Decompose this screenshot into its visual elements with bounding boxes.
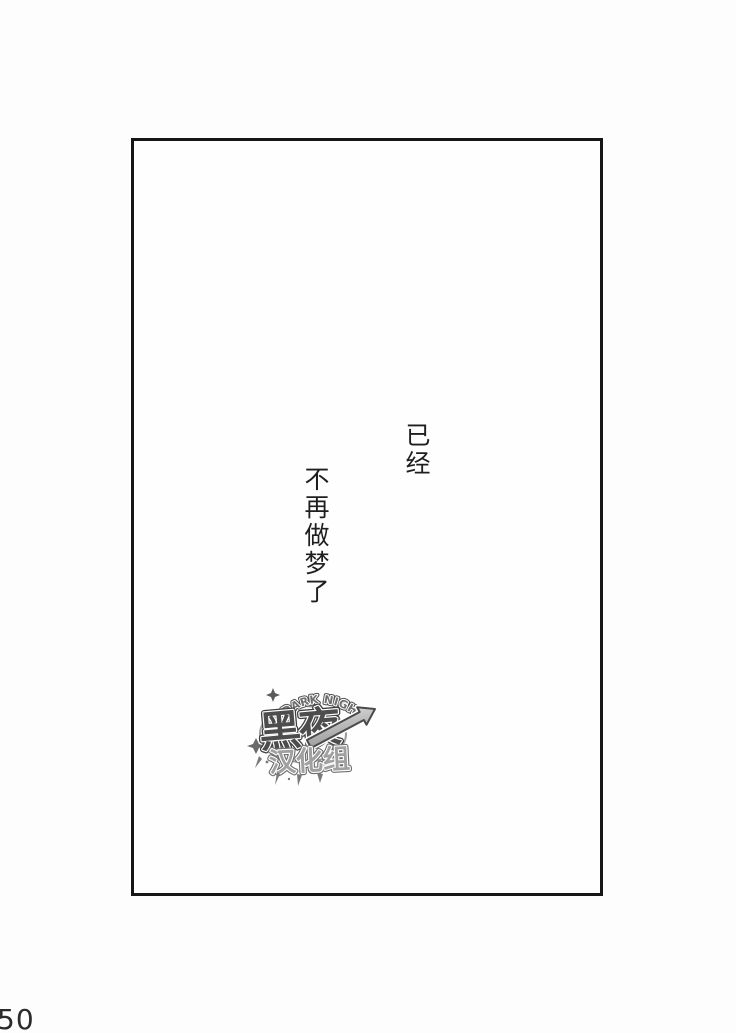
- manga-page: 已经 不再做梦了 DARK NIGHT DARK NIGHT 黑夜 黑夜: [0, 0, 736, 1033]
- watermark-subtitle-group: 汉化组 汉化组: [268, 743, 351, 779]
- watermark-subtitle: 汉化组: [268, 743, 351, 779]
- dialogue-text-2: 不再做梦了: [302, 466, 329, 606]
- page-number: 50: [0, 1003, 35, 1033]
- translation-group-watermark: DARK NIGHT DARK NIGHT 黑夜 黑夜 汉化组 汉化组: [247, 684, 379, 786]
- sparkle-icon: [266, 688, 280, 702]
- dialogue-text-1: 已经: [403, 422, 430, 478]
